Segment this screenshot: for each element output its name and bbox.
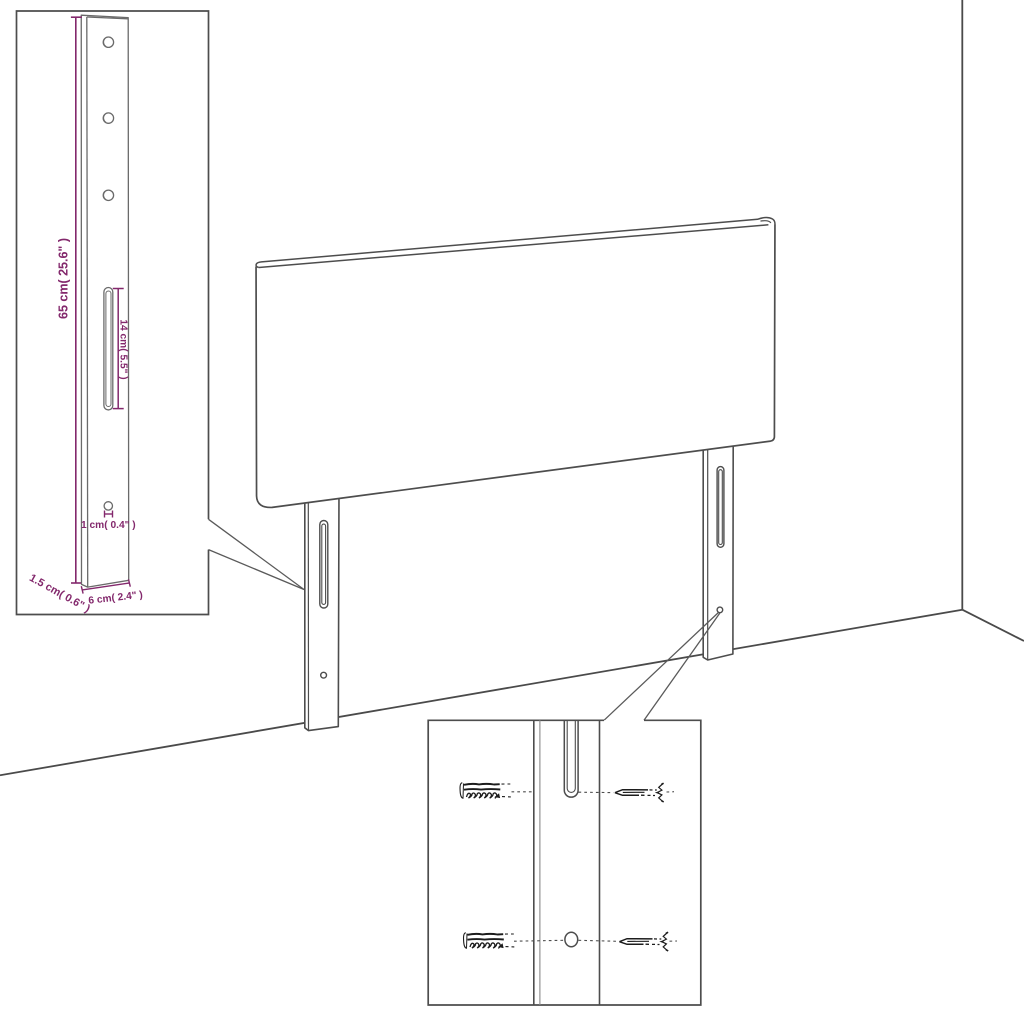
svg-text:65 cm( 25.6" ): 65 cm( 25.6" ) (57, 238, 71, 319)
svg-text:6 cm( 2.4" ): 6 cm( 2.4" ) (88, 590, 144, 607)
svg-text:14 cm( 5.5" ): 14 cm( 5.5" ) (117, 319, 128, 379)
svg-text:1 cm( 0.4" ): 1 cm( 0.4" ) (81, 520, 136, 531)
